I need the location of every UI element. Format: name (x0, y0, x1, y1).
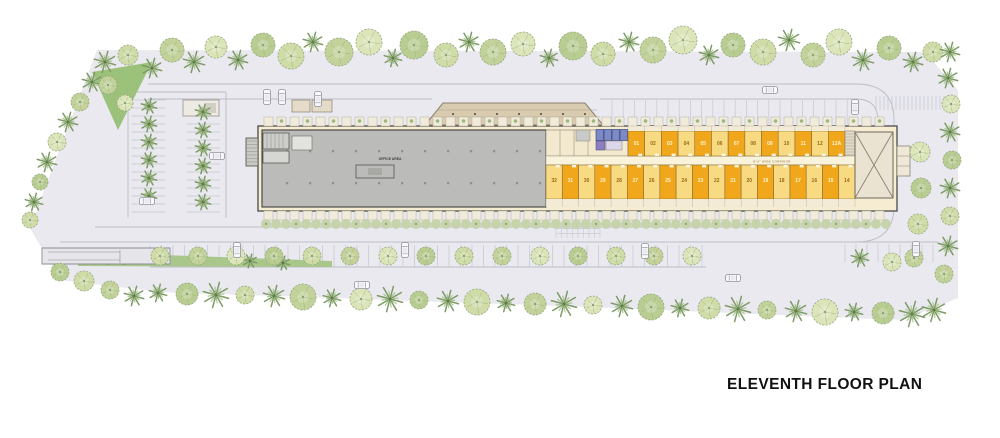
tree (325, 38, 353, 66)
tree (251, 33, 275, 57)
unit-number: 15 (828, 178, 834, 184)
planter-box (680, 211, 689, 220)
hedge (601, 219, 611, 229)
unit-number: 02 (650, 141, 656, 147)
tree (923, 42, 943, 62)
planter-box (550, 117, 559, 126)
lobby (606, 141, 622, 150)
unit-cell: 08 (745, 131, 762, 156)
unit-cell: 31 (562, 165, 578, 199)
planter-box (290, 117, 299, 126)
tree (942, 95, 960, 113)
tree (464, 289, 490, 315)
planter-box (576, 211, 585, 220)
tree (205, 36, 227, 58)
unit-door (653, 165, 657, 167)
planter-box (719, 211, 728, 220)
planter-box (277, 211, 286, 220)
unit-cell: 14 (839, 165, 855, 199)
hedge (871, 219, 881, 229)
tree (434, 43, 458, 67)
hedge (361, 219, 371, 229)
planter-box (264, 211, 273, 220)
hedge (401, 219, 411, 229)
planter-plant (826, 119, 830, 123)
planter-box (368, 211, 377, 220)
unit-cell: 06 (711, 131, 728, 156)
hall-label: OFFICE AREA (379, 157, 402, 161)
planter-plant (644, 119, 648, 123)
unit-cell: 12A (828, 131, 845, 156)
unit-number: 28 (616, 178, 622, 184)
unit-cell: 10 (778, 131, 795, 156)
car (641, 244, 648, 259)
car (140, 197, 155, 204)
hedge (661, 219, 671, 229)
hedge (271, 219, 281, 229)
palm-tree (778, 29, 799, 50)
tree (48, 133, 66, 151)
planter-box (342, 211, 351, 220)
planter-box (615, 211, 624, 220)
unit-door (718, 165, 722, 167)
unit-cell: 26 (644, 165, 660, 199)
unit-number: 19 (763, 178, 769, 184)
unit-door (688, 154, 692, 156)
car (355, 281, 370, 288)
unit-number: 26 (649, 178, 655, 184)
hedge (581, 219, 591, 229)
unit-number: 17 (795, 178, 801, 184)
tree (812, 299, 838, 325)
palm-tree (459, 32, 478, 51)
tree (911, 178, 931, 198)
unit-number: 27 (633, 178, 639, 184)
lift-lobby (596, 141, 605, 150)
tree (669, 26, 697, 54)
unit-number: 31 (568, 178, 574, 184)
hedge-dot (865, 223, 867, 225)
hedge (371, 219, 381, 229)
unit-number: 09 (767, 141, 773, 147)
hedge (631, 219, 641, 229)
tree (400, 31, 428, 59)
unit-number: 12A (832, 141, 842, 147)
planter-box (524, 117, 533, 126)
unit-number: 12 (817, 141, 823, 147)
unit-cell: 15 (822, 165, 838, 199)
hedge (481, 219, 491, 229)
planter-box (355, 211, 364, 220)
hedge (731, 219, 741, 229)
hedge (701, 219, 711, 229)
unit-number: 20 (747, 178, 753, 184)
unit-number: 10 (784, 141, 790, 147)
planter-plant (462, 119, 466, 123)
planter-box (433, 211, 442, 220)
hedge (461, 219, 471, 229)
planter-box (628, 211, 637, 220)
hedge (691, 219, 701, 229)
upper-bay (628, 126, 845, 131)
hedge-dot (715, 223, 717, 225)
palm-tree (619, 32, 638, 51)
unit-number: 06 (717, 141, 723, 147)
planter-box (641, 211, 650, 220)
unit-door (722, 154, 726, 156)
unit-door (772, 154, 776, 156)
unit-door (767, 165, 771, 167)
unit-number: 11 (801, 141, 807, 147)
planter-box (862, 211, 871, 220)
tree (758, 301, 776, 319)
unit-door (822, 154, 826, 156)
unit-number: 24 (681, 178, 687, 184)
hedge (881, 219, 891, 229)
planter-box (602, 211, 611, 220)
unit-door (839, 154, 843, 156)
hedge (641, 219, 651, 229)
planter-plant (540, 119, 544, 123)
tree (493, 247, 511, 265)
corridor-label: 8'-0" WIDE CORRIDOR (753, 160, 791, 164)
planter-box (862, 117, 871, 126)
tree (640, 37, 666, 63)
tree (750, 39, 776, 65)
planter-box (381, 211, 390, 220)
planter-plant (722, 119, 726, 123)
unit-number: 18 (779, 178, 785, 184)
planter-box (810, 117, 819, 126)
unit-number: 04 (684, 141, 690, 147)
hedge-dot (685, 223, 687, 225)
planter-box (264, 117, 273, 126)
planter-plant (800, 119, 804, 123)
planter-box (706, 117, 715, 126)
unit-cell: 12 (812, 131, 829, 156)
tree (118, 45, 138, 65)
car (314, 92, 321, 107)
unit-cell: 24 (676, 165, 692, 199)
car (726, 274, 741, 281)
unit-door (705, 154, 709, 156)
unit-number: 08 (750, 141, 756, 147)
planter-box (797, 211, 806, 220)
unit-cell: 20 (741, 165, 757, 199)
unit-cell: 01 (628, 131, 645, 156)
hedge-dot (745, 223, 747, 225)
car (763, 86, 778, 93)
planter-box (303, 211, 312, 220)
planter-box (771, 211, 780, 220)
unit-door (800, 165, 804, 167)
tree (531, 247, 549, 265)
right-annex (897, 146, 910, 176)
planter-box (472, 211, 481, 220)
tree (303, 247, 321, 265)
unit-number: 07 (734, 141, 740, 147)
planter-box (498, 211, 507, 220)
unit-door (783, 165, 787, 167)
unit-number: 16 (812, 178, 818, 184)
tree (22, 212, 38, 228)
hedge (851, 219, 861, 229)
planter-box (693, 211, 702, 220)
planter-box (342, 117, 351, 126)
plan-title: ELEVENTH FLOOR PLAN (727, 376, 922, 394)
hedge (841, 219, 851, 229)
tree (341, 247, 359, 265)
hedge (521, 219, 531, 229)
hedge-dot (295, 223, 297, 225)
planter-box (836, 117, 845, 126)
hedge (781, 219, 791, 229)
corridor (546, 156, 858, 165)
planter-box (316, 117, 325, 126)
planter-plant (670, 119, 674, 123)
planter-plant (592, 119, 596, 123)
service-room (263, 151, 289, 163)
planter-box (420, 211, 429, 220)
tree (872, 302, 894, 324)
tree (290, 284, 316, 310)
tree (99, 76, 117, 94)
tree (511, 32, 535, 56)
tree (265, 247, 283, 265)
tree (935, 265, 953, 283)
hedge (391, 219, 401, 229)
car (233, 243, 240, 258)
planter-box (498, 117, 507, 126)
hedge-dot (805, 223, 807, 225)
hedge-dot (505, 223, 507, 225)
planter-box (420, 117, 429, 126)
unit-number: 05 (700, 141, 706, 147)
unit-cell: 32 (546, 165, 562, 199)
tree (410, 291, 428, 309)
planter-plant (748, 119, 752, 123)
unit-door (702, 165, 706, 167)
planter-box (732, 117, 741, 126)
unit-number: 25 (665, 178, 671, 184)
unit-cell: 25 (660, 165, 676, 199)
planter-box (459, 211, 468, 220)
hedge (341, 219, 351, 229)
planter-box (758, 117, 767, 126)
tree (877, 36, 901, 60)
planter-box (446, 211, 455, 220)
tree (721, 33, 745, 57)
unit-cell: 29 (595, 165, 611, 199)
unit-door (738, 154, 742, 156)
unit-door (805, 154, 809, 156)
unit-number: 14 (844, 178, 850, 184)
planter-plant (514, 119, 518, 123)
tree (910, 142, 930, 162)
planter-box (602, 117, 611, 126)
tree (455, 247, 473, 265)
hedge (491, 219, 501, 229)
unit-number: 29 (600, 178, 606, 184)
planter-box (511, 211, 520, 220)
hedge-dot (625, 223, 627, 225)
planter-plant (852, 119, 856, 123)
hedge-dot (655, 223, 657, 225)
hall-stage-inner (368, 168, 382, 175)
planter-box (329, 211, 338, 220)
hedge (611, 219, 621, 229)
planter-plant (774, 119, 778, 123)
unit-cell: 05 (695, 131, 712, 156)
planter-box (576, 117, 585, 126)
unit-number: 23 (698, 178, 704, 184)
planter-box (589, 211, 598, 220)
planter-box (784, 211, 793, 220)
unit-cell: 04 (678, 131, 695, 156)
planter-box (394, 211, 403, 220)
lift-shaft (596, 130, 604, 141)
car (278, 90, 285, 105)
planter-plant (696, 119, 700, 123)
unit-number: 32 (551, 178, 557, 184)
planter-plant (878, 119, 882, 123)
unit-door (621, 165, 625, 167)
tree (941, 207, 959, 225)
unit-door (670, 165, 674, 167)
core-service (576, 130, 590, 141)
planter-box (550, 211, 559, 220)
planter-box (407, 211, 416, 220)
planter-box (758, 211, 767, 220)
unit-number: 30 (584, 178, 590, 184)
tree (683, 247, 701, 265)
unit-cell: 02 (645, 131, 662, 156)
planter-box (537, 211, 546, 220)
car (210, 152, 225, 159)
planter-plant (332, 119, 336, 123)
hedge-dot (385, 223, 387, 225)
hedge-dot (445, 223, 447, 225)
planter-box (823, 211, 832, 220)
hedge-dot (535, 223, 537, 225)
unit-door (849, 165, 853, 167)
tree (51, 263, 69, 281)
tree (32, 174, 48, 190)
planter-box (706, 211, 715, 220)
hedge-dot (325, 223, 327, 225)
tree (101, 281, 119, 299)
unit-door (572, 165, 576, 167)
planter-plant (488, 119, 492, 123)
planter-plant (358, 119, 362, 123)
tree (584, 296, 602, 314)
planter-box (654, 117, 663, 126)
unit-cell: 27 (627, 165, 643, 199)
floor-plan-canvas: 8'-0" WIDE CORRIDOROFFICE AREA0102030405… (0, 0, 1000, 438)
hedge-dot (475, 223, 477, 225)
hedge-dot (565, 223, 567, 225)
hedge (571, 219, 581, 229)
hedge (821, 219, 831, 229)
unit-cell: 21 (725, 165, 741, 199)
unit-cell: 03 (661, 131, 678, 156)
unit-door (735, 165, 739, 167)
planter-box (875, 211, 884, 220)
hedge (451, 219, 461, 229)
planter-box (784, 117, 793, 126)
lift-shaft (620, 130, 628, 141)
hedge (721, 219, 731, 229)
unit-door (816, 165, 820, 167)
planter-box (446, 117, 455, 126)
tree (883, 253, 901, 271)
car (263, 90, 270, 105)
hedge-dot (835, 223, 837, 225)
tree (151, 247, 169, 265)
toilet-room (292, 136, 312, 150)
planter-box (316, 211, 325, 220)
unit-number: 01 (634, 141, 640, 147)
unit-door (556, 165, 560, 167)
unit-door (588, 165, 592, 167)
planter-box (810, 211, 819, 220)
hedge (421, 219, 431, 229)
hedge (751, 219, 761, 229)
car (401, 243, 408, 258)
tree (826, 29, 852, 55)
hedge-dot (775, 223, 777, 225)
tree (801, 43, 825, 67)
planter-box (849, 211, 858, 220)
hedge (791, 219, 801, 229)
planter-box (654, 211, 663, 220)
unit-cell: 30 (579, 165, 595, 199)
tree (559, 32, 587, 60)
unit-door (755, 154, 759, 156)
tree (160, 38, 184, 62)
tree (607, 247, 625, 265)
planter-box (368, 117, 377, 126)
planter-plant (566, 119, 570, 123)
planter-box (524, 211, 533, 220)
tree (356, 29, 382, 55)
tree (176, 283, 198, 305)
planter-box (680, 117, 689, 126)
planter-plant (306, 119, 310, 123)
planter-box (667, 211, 676, 220)
tree (236, 286, 254, 304)
unit-door (655, 154, 659, 156)
unit-cell: 22 (709, 165, 725, 199)
unit-number: 03 (667, 141, 673, 147)
planter-plant (280, 119, 284, 123)
hedge (511, 219, 521, 229)
tree (278, 43, 304, 69)
tree (908, 214, 928, 234)
tree (591, 42, 615, 66)
hedge-dot (265, 223, 267, 225)
planter-box (290, 211, 299, 220)
hedge (301, 219, 311, 229)
planter-plant (384, 119, 388, 123)
unit-cell: 07 (728, 131, 745, 156)
planter-box (628, 117, 637, 126)
hedge (311, 219, 321, 229)
planter-plant (618, 119, 622, 123)
unit-number: 22 (714, 178, 720, 184)
unit-number: 21 (730, 178, 736, 184)
floor-plan-page: 8'-0" WIDE CORRIDOROFFICE AREA0102030405… (0, 0, 1000, 438)
